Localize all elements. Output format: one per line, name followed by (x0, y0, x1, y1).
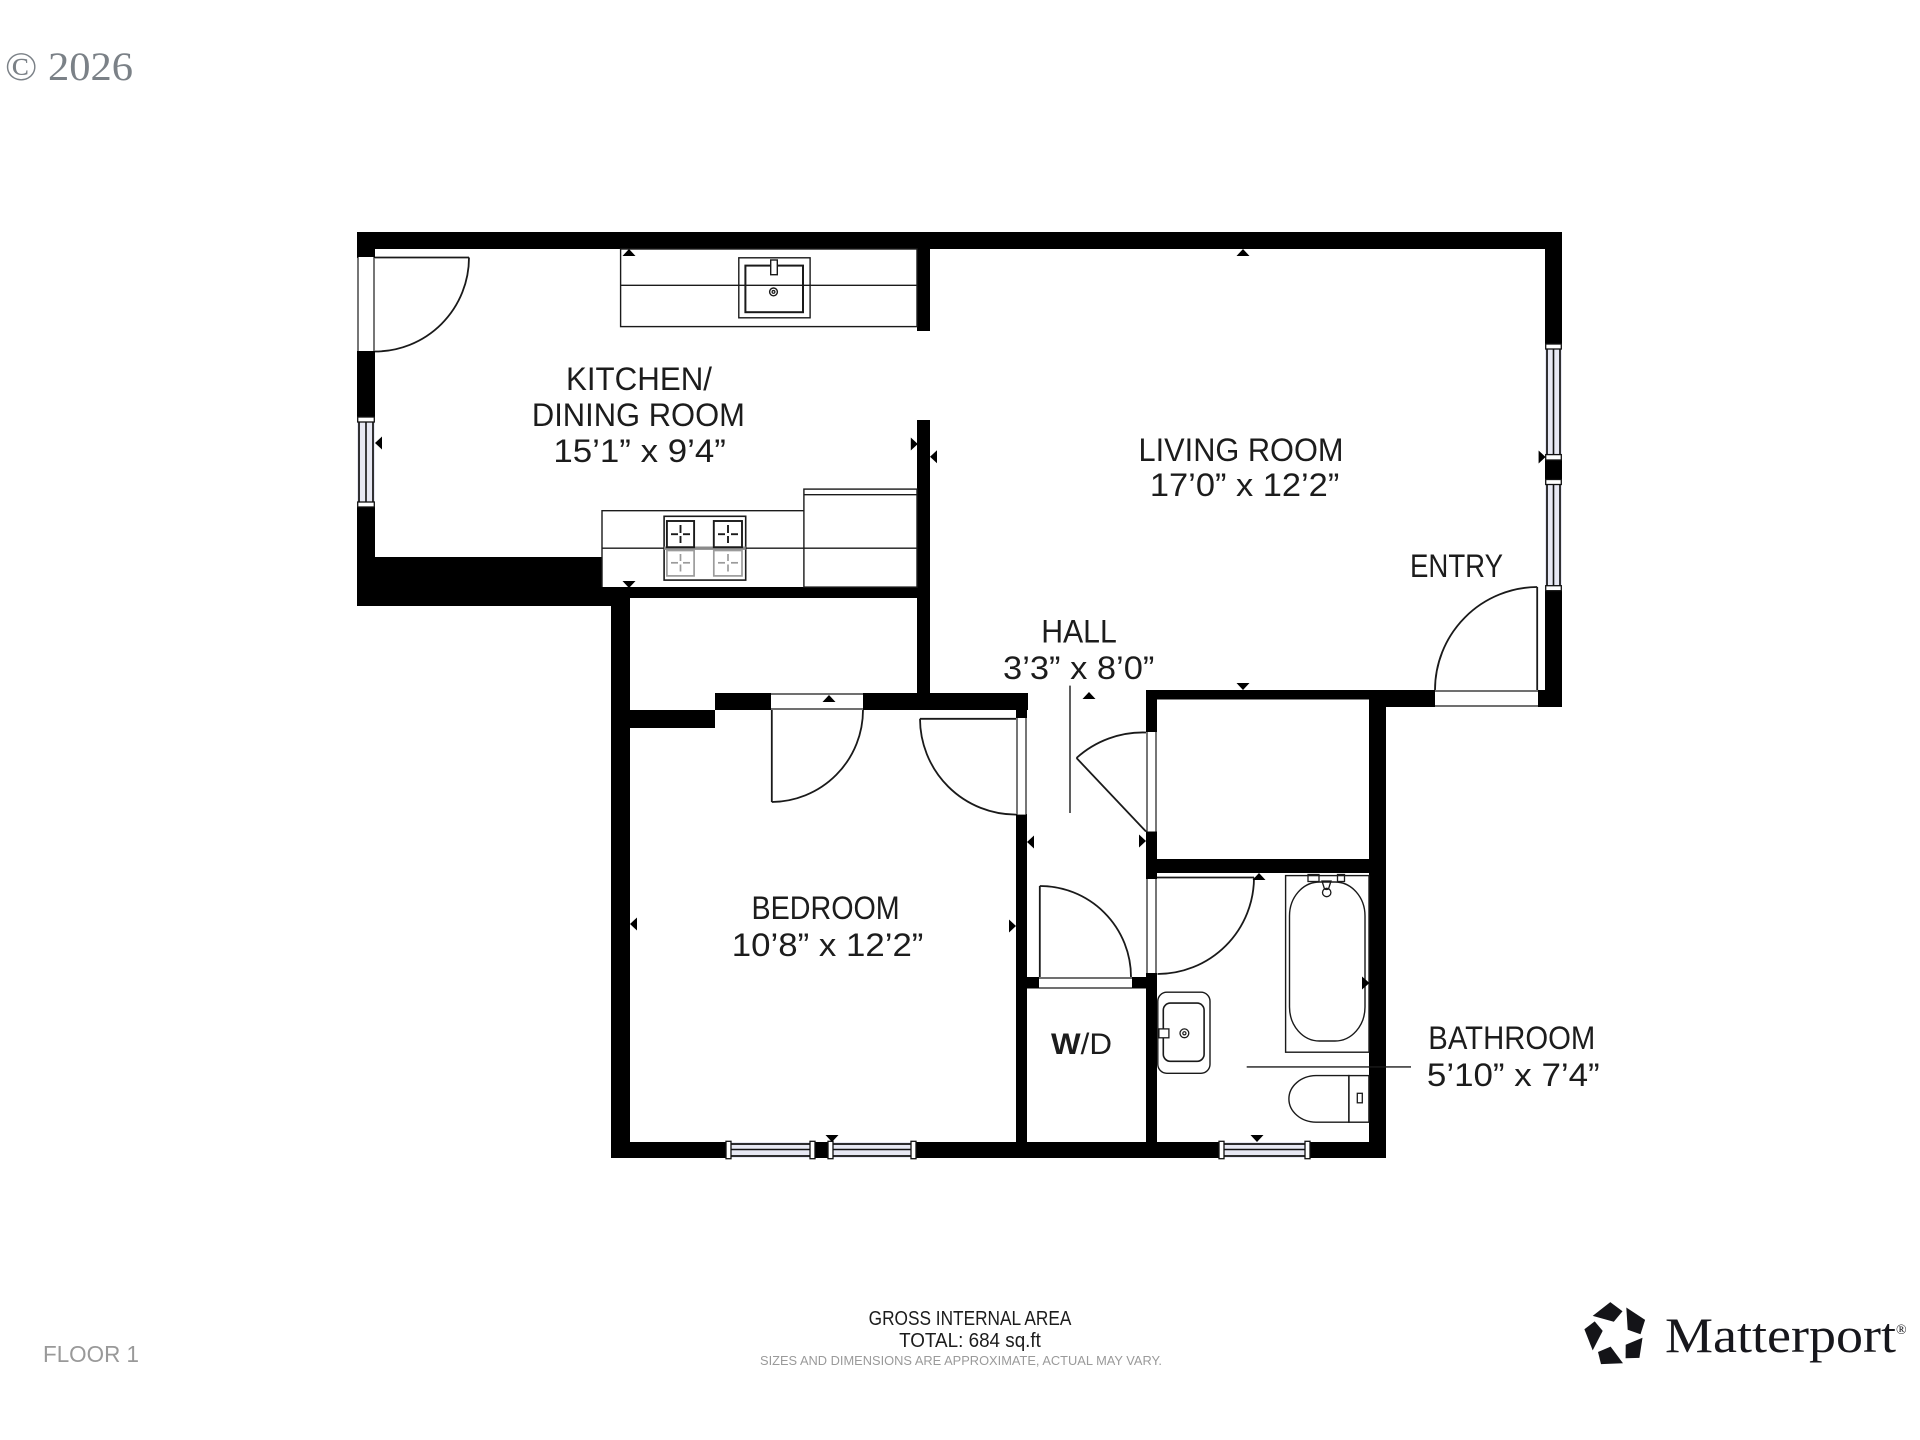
svg-text:®: ® (1896, 1323, 1907, 1338)
svg-text:HALL: HALL (1041, 614, 1117, 650)
svg-text:DINING ROOM: DINING ROOM (532, 397, 745, 433)
svg-text:W/D: W/D (1051, 1028, 1112, 1061)
svg-text:Matterport: Matterport (1665, 1307, 1896, 1363)
svg-text:LIVING ROOM: LIVING ROOM (1139, 432, 1344, 468)
svg-text:KITCHEN/: KITCHEN/ (566, 361, 712, 397)
svg-text:3’3” x 8’0”: 3’3” x 8’0” (1003, 650, 1154, 686)
svg-text:TOTAL: 684 sq.ft: TOTAL: 684 sq.ft (899, 1329, 1041, 1352)
svg-text:10’8” x 12’2”: 10’8” x 12’2” (732, 927, 924, 963)
svg-text:15’1” x 9’4”: 15’1” x 9’4” (553, 433, 726, 469)
svg-text:FLOOR 1: FLOOR 1 (43, 1341, 139, 1367)
svg-text:ENTRY: ENTRY (1410, 548, 1503, 584)
svg-text:17’0” x 12’2”: 17’0” x 12’2” (1150, 467, 1339, 503)
svg-text:GROSS INTERNAL AREA: GROSS INTERNAL AREA (869, 1308, 1072, 1330)
svg-text:BEDROOM: BEDROOM (752, 890, 900, 926)
svg-text:5’10” x 7’4”: 5’10” x 7’4” (1427, 1057, 1600, 1093)
svg-text:SIZES AND DIMENSIONS ARE APPRO: SIZES AND DIMENSIONS ARE APPROXIMATE, AC… (760, 1353, 1162, 1368)
svg-text:BATHROOM: BATHROOM (1428, 1020, 1595, 1056)
svg-text:© 2026: © 2026 (5, 44, 133, 89)
